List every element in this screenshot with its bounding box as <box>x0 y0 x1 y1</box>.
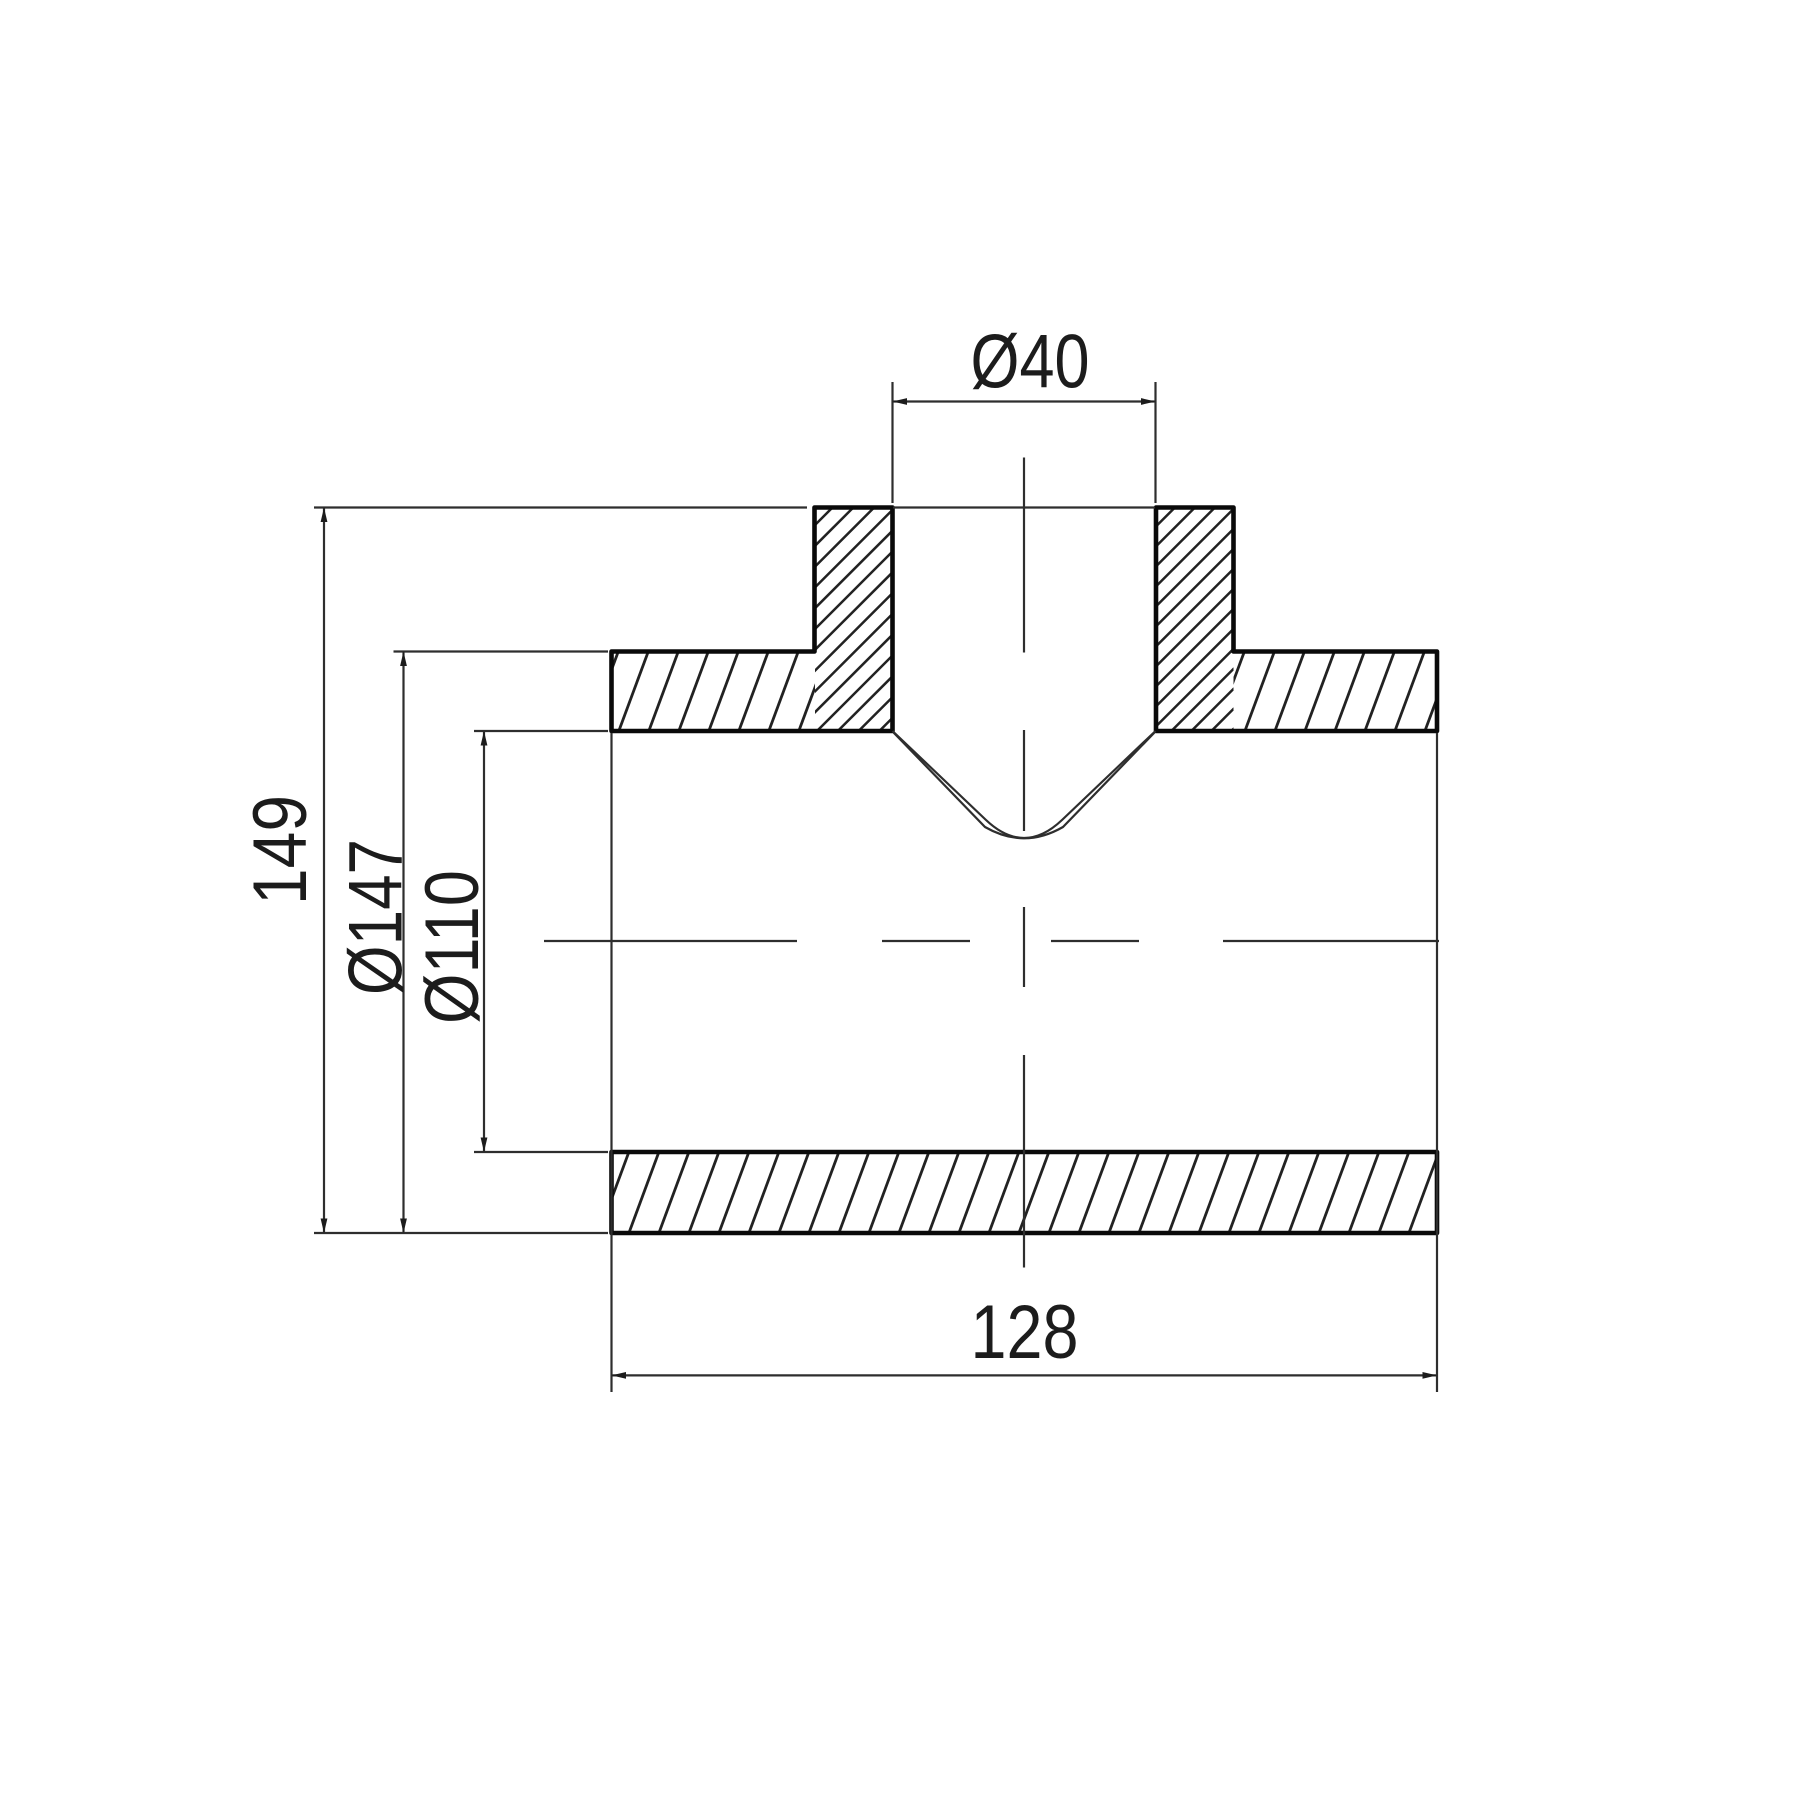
svg-text:Ø110: Ø110 <box>410 870 495 1024</box>
svg-text:Ø40: Ø40 <box>971 320 1090 405</box>
svg-text:Ø147: Ø147 <box>334 839 419 995</box>
svg-text:128: 128 <box>971 1290 1079 1375</box>
svg-text:149: 149 <box>238 795 323 905</box>
